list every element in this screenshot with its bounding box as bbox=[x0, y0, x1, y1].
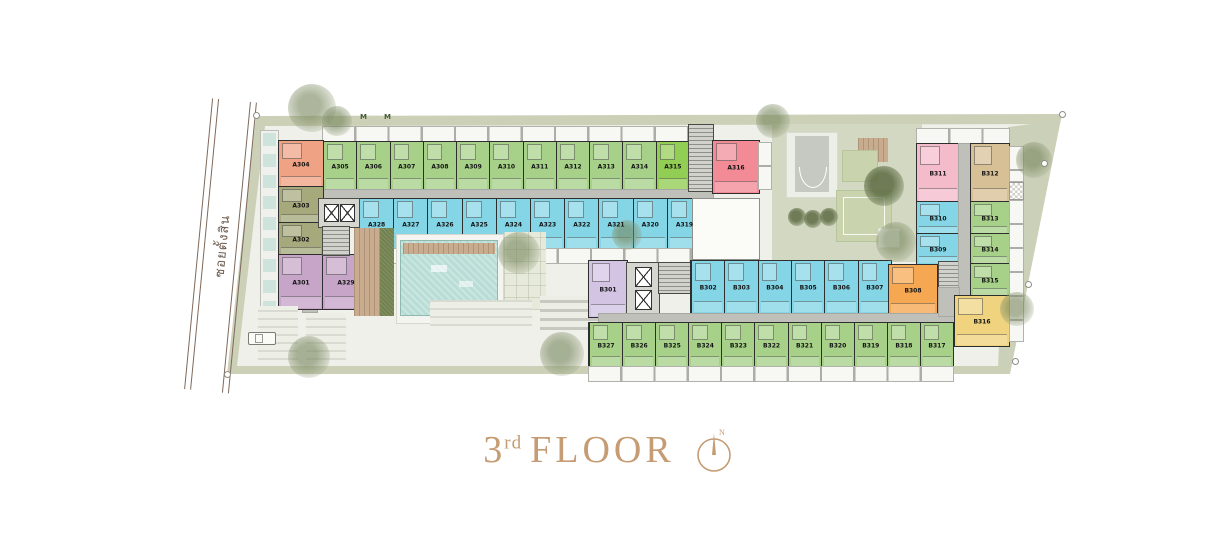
unit-label: B315 bbox=[971, 277, 1009, 284]
unit-B305[interactable]: B305 bbox=[791, 261, 824, 313]
unit-label: A322 bbox=[565, 222, 598, 229]
unit-label: B312 bbox=[971, 171, 1009, 178]
pool-lounger bbox=[431, 265, 447, 272]
unit-B306[interactable]: B306 bbox=[824, 261, 857, 313]
unit-label: B324 bbox=[689, 342, 721, 349]
boundary-pin bbox=[1041, 160, 1048, 167]
unit-B315[interactable]: B315 bbox=[970, 263, 1010, 297]
unit-label: A320 bbox=[634, 222, 667, 229]
unit-label: B304 bbox=[759, 285, 791, 292]
unit-label: A313 bbox=[590, 163, 622, 170]
pool-lounger bbox=[459, 281, 473, 287]
garden-tree bbox=[864, 166, 904, 206]
tree bbox=[498, 232, 540, 274]
unit-B303[interactable]: B303 bbox=[724, 261, 757, 313]
svg-text:N: N bbox=[719, 428, 725, 437]
unit-label: B301 bbox=[589, 287, 627, 294]
unit-label: B314 bbox=[971, 246, 1009, 253]
unit-B327[interactable]: B327 bbox=[589, 323, 622, 367]
boundary-pin bbox=[1059, 111, 1066, 118]
unit-B319[interactable]: B319 bbox=[854, 323, 887, 367]
unit-label: B319 bbox=[855, 342, 887, 349]
unit-label: B305 bbox=[792, 285, 824, 292]
boundary-pin bbox=[224, 371, 231, 378]
unit-label: B327 bbox=[590, 342, 622, 349]
unit-A322[interactable]: A322 bbox=[564, 199, 598, 249]
stair-core-a-east bbox=[688, 124, 714, 192]
unit-label: A309 bbox=[457, 163, 489, 170]
unit-label: B316 bbox=[955, 319, 1009, 326]
wood-deck bbox=[354, 228, 380, 316]
unit-label: A329 bbox=[323, 280, 369, 287]
unit-label: A310 bbox=[490, 163, 522, 170]
unit-label: A303 bbox=[279, 202, 323, 209]
unit-label: B302 bbox=[692, 285, 724, 292]
unit-B324[interactable]: B324 bbox=[688, 323, 721, 367]
unit-label: B306 bbox=[825, 285, 857, 292]
unit-A311[interactable]: A311 bbox=[523, 142, 556, 190]
unit-label: B308 bbox=[889, 288, 937, 295]
unit-label: A308 bbox=[424, 163, 456, 170]
west-facade bbox=[260, 130, 279, 320]
floor-word: FLOOR bbox=[530, 429, 675, 471]
unit-A313[interactable]: A313 bbox=[589, 142, 622, 190]
unit-label: A302 bbox=[279, 236, 323, 243]
unit-label: A315 bbox=[657, 163, 689, 170]
elevator-icon bbox=[635, 267, 652, 287]
unit-label: A305 bbox=[324, 163, 356, 170]
unit-label: B310 bbox=[917, 215, 959, 222]
unit-A308[interactable]: A308 bbox=[423, 142, 456, 190]
unit-label: B326 bbox=[623, 342, 655, 349]
unit-label: B322 bbox=[755, 342, 787, 349]
unit-A305[interactable]: A305 bbox=[323, 142, 356, 190]
floor-title-block: 3rdFLOOR N bbox=[0, 418, 1220, 482]
unit-a316-balcony bbox=[758, 142, 772, 190]
unit-label: A327 bbox=[394, 222, 427, 229]
unit-label: A301 bbox=[279, 280, 323, 287]
unit-label: A326 bbox=[428, 222, 461, 229]
elevator-core-a bbox=[318, 198, 360, 228]
unit-A309[interactable]: A309 bbox=[456, 142, 489, 190]
unit-label: B318 bbox=[888, 342, 920, 349]
unit-label: B325 bbox=[656, 342, 688, 349]
unit-label: B320 bbox=[822, 342, 854, 349]
unit-label: B321 bbox=[789, 342, 821, 349]
sport-court bbox=[786, 132, 838, 198]
garden-bush bbox=[820, 208, 838, 226]
elevator-icon bbox=[340, 204, 355, 222]
unit-label: B317 bbox=[921, 342, 953, 349]
unit-label: A316 bbox=[713, 165, 759, 172]
unit-B317[interactable]: B317 bbox=[920, 323, 953, 367]
elevator-icon bbox=[324, 204, 339, 222]
stair-core-b-east bbox=[938, 261, 960, 289]
unit-B302[interactable]: B302 bbox=[691, 261, 724, 313]
unit-label: B303 bbox=[725, 285, 757, 292]
unit-label: A311 bbox=[524, 163, 556, 170]
boundary-pin bbox=[1012, 358, 1019, 365]
facade-glass bbox=[263, 133, 276, 317]
unit-A304[interactable]: A304 bbox=[278, 140, 324, 188]
unit-B313[interactable]: B313 bbox=[970, 201, 1010, 235]
unit-label: A325 bbox=[463, 222, 496, 229]
tree bbox=[288, 336, 330, 378]
unit-label: B311 bbox=[917, 171, 959, 178]
wing-b-upper-row: B302B303B304B305B306B307 bbox=[690, 260, 892, 314]
wing-b-lower-row: B327B326B325B324B323B322B321B320B319B318… bbox=[588, 322, 954, 368]
unit-label: A324 bbox=[497, 222, 530, 229]
stair-core-a bbox=[322, 226, 350, 256]
unit-A316[interactable]: A316 bbox=[712, 140, 760, 194]
road-line bbox=[184, 98, 213, 389]
unit-B312[interactable]: B312 bbox=[970, 143, 1010, 203]
conifer-symbol: M bbox=[384, 114, 391, 121]
unit-label: B309 bbox=[917, 246, 959, 253]
unit-B307[interactable]: B307 bbox=[858, 261, 891, 313]
unit-A307[interactable]: A307 bbox=[390, 142, 423, 190]
compass-icon: N bbox=[693, 424, 737, 476]
wing-a-top-row: A305A306A307A308A309A310A311A312A313A314… bbox=[322, 141, 690, 191]
unit-B320[interactable]: B320 bbox=[821, 323, 854, 367]
unit-label: A306 bbox=[357, 163, 389, 170]
hedge-wall bbox=[380, 228, 394, 316]
floor-number: 3 bbox=[483, 429, 504, 471]
boundary-pin bbox=[1025, 281, 1032, 288]
boundary-pin bbox=[253, 112, 260, 119]
tree bbox=[756, 104, 790, 138]
grate-hatch bbox=[1009, 182, 1024, 200]
unit-label: A307 bbox=[391, 163, 423, 170]
unit-B325[interactable]: B325 bbox=[655, 323, 688, 367]
unit-B308[interactable]: B308 bbox=[888, 264, 938, 316]
floor-title: 3rdFLOOR bbox=[483, 428, 674, 472]
unit-A314[interactable]: A314 bbox=[622, 142, 655, 190]
stair-core-b bbox=[658, 262, 692, 294]
unit-B326[interactable]: B326 bbox=[622, 323, 655, 367]
unit-label: A319 bbox=[668, 222, 701, 229]
conifer-symbol: M bbox=[360, 114, 367, 121]
street-name: ซอยตั้งสิน bbox=[209, 214, 236, 279]
unit-label: A312 bbox=[557, 163, 589, 170]
courtyard-steps-light bbox=[430, 300, 532, 326]
tree bbox=[540, 332, 584, 376]
unit-label: A321 bbox=[599, 222, 632, 229]
unit-A315[interactable]: A315 bbox=[656, 142, 689, 190]
unit-label: B307 bbox=[859, 285, 891, 292]
pool-wood-edge bbox=[403, 243, 495, 254]
unit-B321[interactable]: B321 bbox=[788, 323, 821, 367]
floor-ordinal: rd bbox=[504, 432, 522, 453]
unit-A301[interactable]: A301 bbox=[278, 254, 324, 310]
unit-B323[interactable]: B323 bbox=[721, 323, 754, 367]
unit-label: A323 bbox=[531, 222, 564, 229]
function-hall bbox=[692, 198, 760, 260]
unit-B318[interactable]: B318 bbox=[887, 323, 920, 367]
floor-plan-canvas: ซอยตั้งสิน A305A306A307A308A309A310A311A… bbox=[0, 0, 1220, 550]
unit-label: B323 bbox=[722, 342, 754, 349]
unit-label: A304 bbox=[279, 161, 323, 168]
unit-A306[interactable]: A306 bbox=[356, 142, 389, 190]
unit-B314[interactable]: B314 bbox=[970, 233, 1010, 265]
elevator-icon bbox=[635, 290, 652, 310]
unit-A310[interactable]: A310 bbox=[489, 142, 522, 190]
unit-B310[interactable]: B310 bbox=[916, 201, 960, 235]
unit-B301[interactable]: B301 bbox=[588, 260, 628, 318]
unit-B311[interactable]: B311 bbox=[916, 143, 960, 203]
tree bbox=[322, 106, 352, 136]
tree bbox=[876, 222, 916, 262]
unit-label: A314 bbox=[623, 163, 655, 170]
parked-car bbox=[248, 332, 276, 345]
unit-label: B313 bbox=[971, 215, 1009, 222]
unit-B322[interactable]: B322 bbox=[754, 323, 787, 367]
wing-b-south-balconies bbox=[588, 366, 954, 382]
unit-A312[interactable]: A312 bbox=[556, 142, 589, 190]
unit-B304[interactable]: B304 bbox=[758, 261, 791, 313]
unit-label: A328 bbox=[360, 222, 393, 229]
elevator-core-b bbox=[626, 262, 660, 316]
